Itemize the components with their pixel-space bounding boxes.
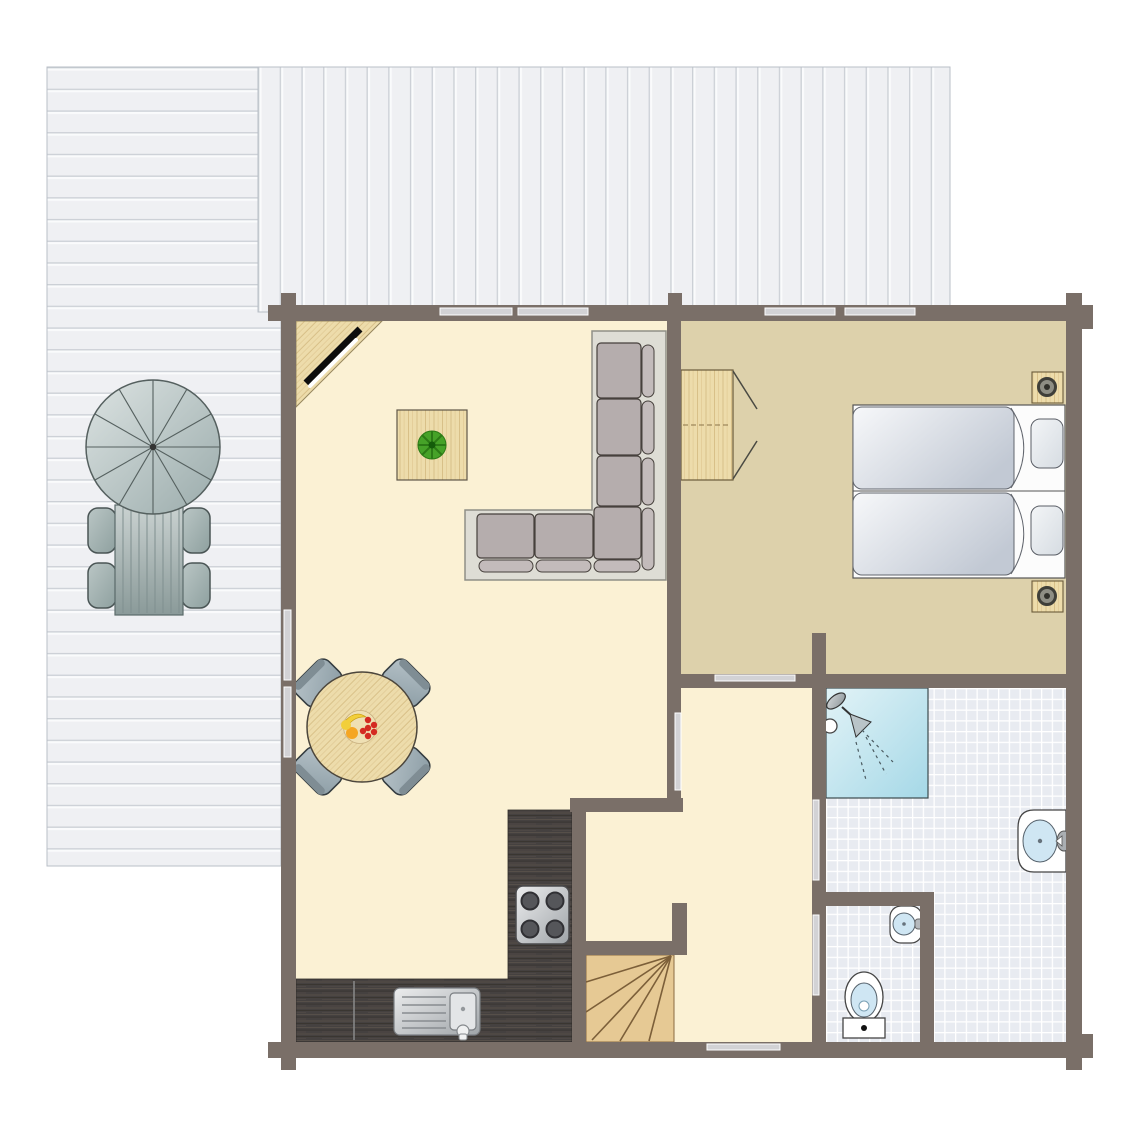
window-living-1: [440, 308, 512, 315]
toilet: [843, 972, 885, 1038]
wall-south: [268, 1042, 1093, 1058]
sofa-cushion: [597, 456, 641, 506]
kitchen-sink: [394, 988, 480, 1040]
burner: [547, 921, 564, 938]
wall-stair-landing: [572, 941, 677, 955]
outdoor-chair: [88, 508, 116, 553]
parasol-pole: [150, 444, 156, 450]
pillow: [1031, 506, 1063, 555]
wall-stair-stub: [672, 903, 687, 955]
duvet: [853, 407, 1014, 489]
log-joint: [1082, 1034, 1093, 1042]
pillow: [1031, 419, 1063, 468]
door-toilet-room: [813, 915, 819, 995]
duvet: [853, 493, 1014, 575]
twin-beds: [853, 405, 1065, 578]
window-west-2: [284, 687, 291, 757]
burner: [522, 893, 539, 910]
wall-wc-east: [920, 892, 934, 1042]
floor-plan-drawing: [0, 0, 1145, 1145]
sofa-bolster: [479, 560, 533, 572]
sofa-cushion: [535, 514, 593, 558]
wall-north: [268, 305, 1093, 321]
wall-east: [1066, 293, 1082, 1070]
sofa-cushion: [597, 399, 641, 455]
window-bedroom-1: [765, 308, 835, 315]
terrace-top-deck: [258, 67, 950, 312]
outdoor-chair: [182, 508, 210, 553]
wall-stair-top: [570, 798, 683, 812]
sofa-bolster: [536, 560, 591, 572]
log-joint: [668, 293, 682, 305]
staircase: [586, 955, 674, 1042]
outdoor-chair: [88, 563, 116, 608]
stove: [516, 886, 569, 944]
potted-plant: [418, 431, 446, 459]
sofa-bolster: [642, 458, 654, 505]
wall-stair-left: [572, 812, 586, 1042]
shower: [823, 688, 928, 798]
sofa-bolster: [642, 345, 654, 397]
door-entrance: [707, 1044, 780, 1050]
window-bedroom-2: [845, 308, 915, 315]
sofa-bolster: [642, 508, 654, 570]
door-bedroom: [715, 675, 795, 681]
sofa-bolster: [642, 401, 654, 454]
window-living-2: [518, 308, 588, 315]
coffee-table: [397, 410, 467, 480]
sofa-cushion: [594, 507, 641, 559]
burner: [522, 921, 539, 938]
door-bathroom: [813, 800, 819, 880]
sofa-bolster: [594, 560, 640, 572]
wall-wc-north: [819, 892, 934, 906]
sofa-cushion: [597, 343, 641, 398]
washbasin: [1018, 810, 1071, 872]
log-joint: [1082, 321, 1093, 329]
window-west-1: [284, 610, 291, 680]
wall-west: [281, 293, 296, 1070]
parasol: [86, 380, 220, 514]
floor-plan-page: [0, 0, 1145, 1145]
dining-set: [290, 655, 433, 798]
outdoor-table: [115, 505, 183, 615]
door-living-hall: [675, 713, 681, 790]
burner: [547, 893, 564, 910]
outdoor-chair: [182, 563, 210, 608]
sofa-cushion: [477, 514, 534, 558]
